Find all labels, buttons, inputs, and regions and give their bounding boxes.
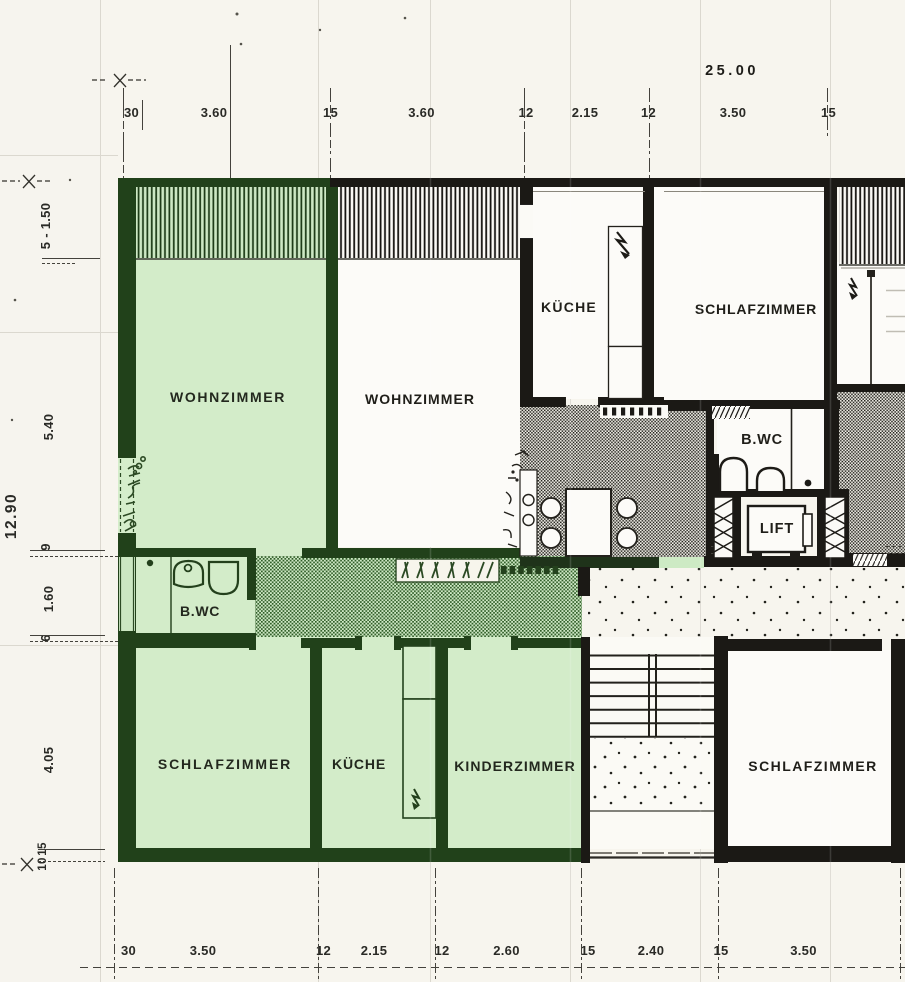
svg-text:3.60: 3.60	[201, 105, 228, 120]
svg-text:3.50: 3.50	[790, 943, 817, 958]
svg-text:12: 12	[641, 105, 656, 120]
svg-text:3.50: 3.50	[190, 943, 217, 958]
svg-text:12: 12	[434, 943, 449, 958]
svg-text:SCHLAFZIMMER: SCHLAFZIMMER	[748, 758, 877, 774]
svg-text:15: 15	[580, 943, 595, 958]
svg-text:2.15: 2.15	[572, 105, 599, 120]
svg-text:SCHLAFZIMMER: SCHLAFZIMMER	[695, 301, 817, 317]
svg-text:2.60: 2.60	[493, 943, 520, 958]
svg-text:3.60: 3.60	[408, 105, 435, 120]
svg-text:10: 10	[37, 857, 49, 870]
svg-text:WOHNZIMMER: WOHNZIMMER	[170, 389, 286, 405]
svg-text:WOHNZIMMER: WOHNZIMMER	[365, 391, 475, 407]
svg-text:3.50: 3.50	[720, 105, 747, 120]
svg-text:15: 15	[37, 842, 49, 856]
svg-text:KÜCHE: KÜCHE	[541, 299, 597, 315]
svg-text:5 - 1.50: 5 - 1.50	[38, 203, 53, 249]
svg-text:LIFT: LIFT	[760, 521, 794, 537]
svg-text:KÜCHE: KÜCHE	[332, 756, 386, 772]
svg-text:B.WC: B.WC	[180, 603, 220, 619]
svg-text:1.60: 1.60	[41, 586, 56, 613]
svg-text:4.05: 4.05	[41, 747, 56, 774]
svg-text:12: 12	[518, 105, 533, 120]
svg-text:B.WC: B.WC	[741, 432, 783, 448]
svg-text:12.90: 12.90	[3, 493, 20, 539]
svg-text:SCHLAFZIMMER: SCHLAFZIMMER	[158, 756, 292, 772]
svg-text:15: 15	[713, 943, 728, 958]
svg-text:2.40: 2.40	[638, 943, 665, 958]
svg-text:30: 30	[121, 943, 136, 958]
svg-text:25.00: 25.00	[705, 63, 759, 79]
svg-text:2.15: 2.15	[361, 943, 388, 958]
svg-text:15: 15	[821, 105, 836, 120]
svg-text:30: 30	[124, 105, 139, 120]
svg-text:KINDERZIMMER: KINDERZIMMER	[454, 758, 575, 774]
svg-text:5.40: 5.40	[41, 414, 56, 441]
svg-text:9: 9	[38, 543, 53, 551]
